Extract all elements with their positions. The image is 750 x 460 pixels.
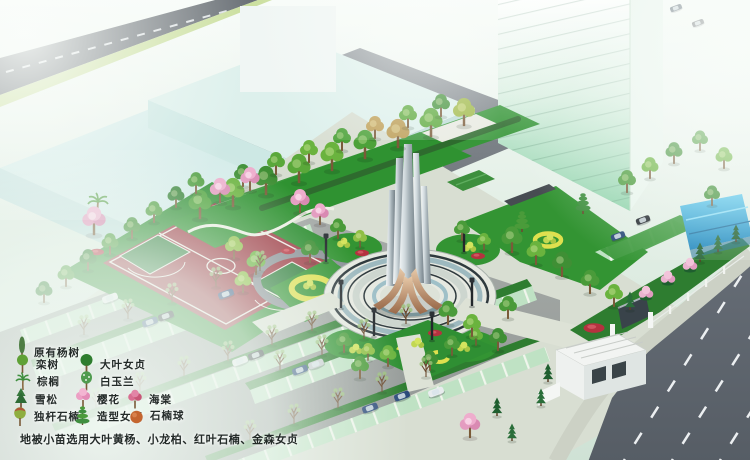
- fence-post: [669, 306, 671, 314]
- site-plan-scene: [0, 0, 750, 460]
- fence-post: [723, 266, 725, 274]
- red-flower-bed: [584, 323, 605, 333]
- fence-post: [687, 293, 689, 301]
- gate-pillar: [648, 312, 653, 328]
- landscape-plan-rendering: 原有杨树 栾树 大叶女贞 棕榈 白玉兰: [0, 0, 750, 460]
- mist-top-center: [250, 0, 590, 140]
- fence-post: [705, 279, 707, 287]
